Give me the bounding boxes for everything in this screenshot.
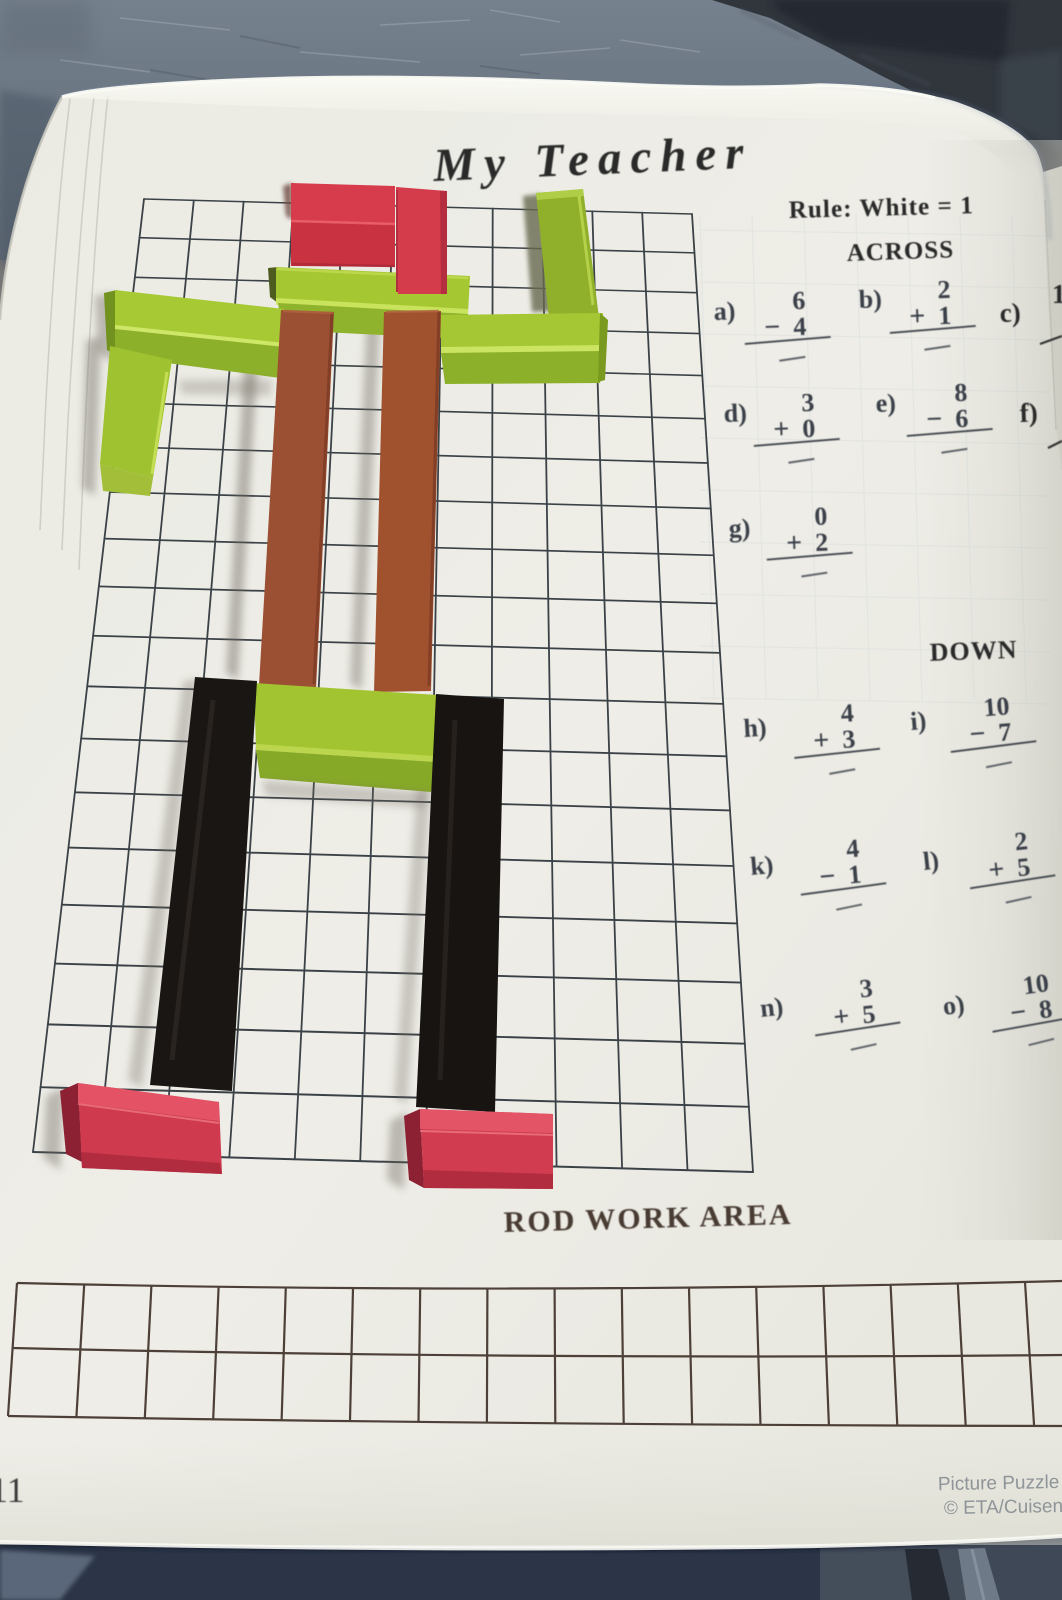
svg-text:6: 6 [955, 404, 969, 433]
svg-text:0: 0 [802, 414, 816, 443]
svg-text:2: 2 [815, 528, 829, 557]
svg-text:+: + [773, 414, 790, 446]
svg-text:i): i) [909, 706, 927, 736]
svg-text:8: 8 [954, 378, 968, 407]
svg-text:−: − [764, 312, 781, 344]
svg-text:7: 7 [997, 717, 1012, 747]
svg-text:+: + [987, 854, 1006, 886]
svg-text:c): c) [999, 297, 1021, 328]
svg-text:b): b) [858, 284, 882, 314]
svg-text:+: + [832, 1001, 851, 1033]
svg-text:3: 3 [801, 388, 815, 417]
svg-text:−: − [926, 404, 943, 436]
svg-text:2: 2 [937, 275, 951, 304]
svg-text:1: 1 [1052, 279, 1062, 309]
svg-text:11: 11 [0, 1470, 25, 1510]
svg-text:1: 1 [938, 301, 952, 330]
svg-text:+: + [786, 527, 803, 559]
svg-text:a): a) [713, 296, 736, 326]
svg-text:0: 0 [814, 502, 828, 531]
svg-text:−: − [818, 861, 837, 893]
svg-text:h): h) [743, 713, 768, 743]
svg-text:+: + [909, 301, 926, 333]
svg-text:+: + [812, 725, 830, 757]
svg-text:4: 4 [793, 312, 807, 341]
svg-text:3: 3 [841, 724, 856, 754]
svg-text:e): e) [875, 388, 896, 418]
svg-text:© ETA/Cuisen: © ETA/Cuisen [944, 1496, 1062, 1519]
svg-text:Rule: White = 1: Rule: White = 1 [788, 192, 974, 224]
svg-text:Picture Puzzle: Picture Puzzle [938, 1472, 1060, 1495]
svg-text:d): d) [723, 398, 747, 428]
svg-text:ACROSS: ACROSS [846, 236, 954, 267]
svg-text:k): k) [749, 850, 775, 881]
svg-text:l): l) [922, 845, 941, 876]
svg-text:1: 1 [847, 859, 862, 889]
svg-text:−: − [968, 718, 986, 750]
svg-text:6: 6 [792, 286, 806, 315]
svg-text:n): n) [759, 992, 785, 1023]
svg-text:f): f) [1019, 397, 1038, 428]
svg-text:g): g) [728, 513, 751, 543]
svg-text:o): o) [941, 989, 966, 1021]
svg-text:DOWN: DOWN [929, 635, 1018, 667]
